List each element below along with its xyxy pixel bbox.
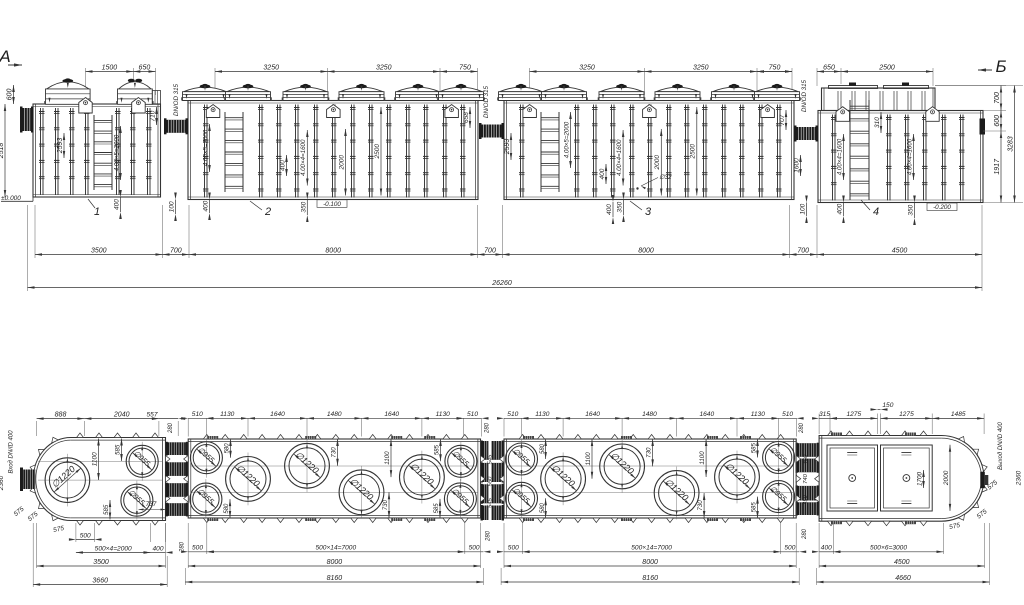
svg-text:1130: 1130 [535, 411, 550, 418]
svg-text:315: 315 [819, 411, 830, 418]
svg-text:1485: 1485 [951, 411, 966, 418]
svg-text:4.00×4=1600: 4.00×4=1600 [300, 139, 307, 176]
svg-text:510: 510 [192, 411, 203, 418]
svg-text:500×14=7000: 500×14=7000 [631, 545, 672, 552]
svg-text:1640: 1640 [270, 411, 285, 418]
svg-text:500: 500 [784, 545, 795, 552]
svg-text:Б: Б [995, 57, 1006, 76]
svg-text:280: 280 [168, 422, 174, 434]
svg-text:550: 550 [488, 476, 494, 486]
svg-text:4.00×5=2000: 4.00×5=2000 [202, 129, 209, 166]
svg-text:4500: 4500 [892, 247, 908, 254]
svg-text:1500: 1500 [102, 64, 118, 71]
svg-text:730: 730 [382, 499, 389, 510]
svg-text:400: 400 [203, 200, 210, 211]
svg-text:4.00×4=1600: 4.00×4=1600 [616, 139, 623, 176]
svg-text:3250: 3250 [693, 64, 709, 71]
svg-text:585: 585 [103, 504, 110, 515]
svg-text:1640: 1640 [699, 411, 714, 418]
svg-text:585: 585 [115, 444, 122, 455]
svg-text:500: 500 [469, 545, 480, 552]
svg-text:650: 650 [139, 64, 151, 71]
svg-text:DN/OD 315: DN/OD 315 [173, 83, 180, 116]
svg-text:150: 150 [882, 402, 893, 409]
svg-text:580: 580 [224, 503, 230, 514]
svg-text:1100: 1100 [585, 452, 592, 466]
svg-text:730: 730 [697, 500, 704, 511]
svg-text:580: 580 [540, 502, 546, 513]
svg-text:545: 545 [488, 454, 494, 464]
svg-text:400: 400 [606, 204, 613, 215]
svg-text:580: 580 [225, 443, 231, 454]
svg-text:100: 100 [800, 203, 807, 214]
svg-text:750: 750 [459, 64, 471, 71]
svg-text:510: 510 [507, 411, 518, 418]
svg-text:707: 707 [779, 114, 786, 125]
svg-text:600: 600 [994, 115, 1001, 127]
svg-text:2360: 2360 [0, 475, 5, 491]
svg-text:2000: 2000 [654, 155, 661, 171]
svg-text:400: 400 [114, 199, 121, 210]
svg-text:4.00×4=1600: 4.00×4=1600 [906, 138, 913, 175]
svg-text:1100: 1100 [384, 451, 391, 465]
svg-text:400: 400 [599, 168, 606, 179]
svg-text:280: 280 [485, 422, 491, 434]
svg-text:585: 585 [435, 444, 441, 455]
svg-text:DN/OD 315: DN/OD 315 [483, 85, 490, 118]
svg-text:-0.100: -0.100 [323, 201, 341, 208]
svg-text:3660: 3660 [92, 577, 108, 584]
svg-text:3: 3 [645, 206, 652, 218]
svg-text:8000: 8000 [638, 247, 654, 254]
svg-text:3250: 3250 [263, 64, 279, 71]
svg-text:350: 350 [617, 201, 624, 212]
svg-text:2593: 2593 [57, 138, 64, 155]
svg-text:2593: 2593 [504, 139, 511, 156]
svg-text:580: 580 [540, 443, 546, 454]
svg-text:500: 500 [192, 545, 203, 552]
svg-text:1640: 1640 [384, 411, 399, 418]
svg-text:8000: 8000 [325, 247, 341, 254]
svg-text:1480: 1480 [642, 411, 657, 418]
svg-text:500×6=3000: 500×6=3000 [870, 545, 907, 552]
svg-text:730: 730 [331, 447, 338, 458]
svg-text:2000: 2000 [338, 155, 345, 171]
svg-text:1: 1 [94, 206, 100, 218]
svg-text:4.00×4=1600: 4.00×4=1600 [836, 138, 843, 175]
svg-text:350: 350 [908, 204, 915, 215]
svg-text:2000: 2000 [943, 470, 950, 486]
svg-text:500×4=2000: 500×4=2000 [95, 545, 132, 552]
svg-text:100: 100 [169, 201, 176, 212]
svg-text:500: 500 [80, 532, 91, 539]
svg-text:585: 585 [752, 502, 758, 513]
svg-text:500×14=7000: 500×14=7000 [315, 545, 356, 552]
svg-text:888: 888 [55, 411, 67, 418]
svg-text:1130: 1130 [751, 411, 766, 418]
svg-text:737: 737 [146, 501, 157, 508]
svg-text:1480: 1480 [327, 411, 342, 418]
svg-text:585: 585 [752, 443, 758, 454]
svg-text:700: 700 [994, 92, 1001, 104]
svg-text:400: 400 [821, 545, 832, 552]
svg-text:730: 730 [646, 447, 653, 458]
svg-text:585: 585 [434, 503, 440, 514]
svg-text:4: 4 [873, 206, 879, 218]
svg-text:450: 450 [803, 454, 809, 464]
svg-text:1130: 1130 [436, 411, 451, 418]
svg-text:3500: 3500 [91, 247, 107, 254]
svg-text:310: 310 [874, 117, 881, 128]
svg-text:Вход DN/ID 400: Вход DN/ID 400 [9, 430, 15, 474]
svg-text:450: 450 [803, 494, 809, 504]
svg-text:650: 650 [823, 64, 835, 71]
svg-text:26260: 26260 [491, 280, 512, 287]
svg-text:658: 658 [463, 112, 470, 123]
svg-text:1275: 1275 [899, 411, 914, 418]
svg-text:2518: 2518 [0, 143, 5, 160]
svg-text:2: 2 [264, 206, 271, 218]
svg-text:2360: 2360 [1016, 470, 1023, 486]
svg-text:A: A [0, 47, 11, 66]
svg-text:8000: 8000 [642, 559, 658, 566]
svg-text:700: 700 [797, 247, 809, 254]
svg-text:350: 350 [300, 201, 307, 212]
svg-text:1100: 1100 [699, 451, 706, 465]
svg-text:3250: 3250 [376, 64, 392, 71]
svg-text:3250: 3250 [579, 64, 595, 71]
svg-text:1275: 1275 [846, 411, 861, 418]
svg-text:1700: 1700 [917, 472, 924, 487]
svg-text:700: 700 [484, 247, 496, 254]
svg-text:4.00×5=2000: 4.00×5=2000 [113, 134, 120, 171]
svg-text:400: 400 [280, 160, 287, 171]
svg-text:2500: 2500 [878, 64, 895, 71]
svg-text:Выход DN/ID 400: Выход DN/ID 400 [998, 422, 1004, 470]
svg-text:2500: 2500 [374, 144, 381, 160]
svg-text:-0.200: -0.200 [933, 204, 951, 211]
svg-text:DN/OD 315: DN/OD 315 [801, 79, 808, 112]
svg-text:750: 750 [769, 64, 781, 71]
svg-text:400: 400 [152, 545, 163, 552]
svg-text:545: 545 [488, 497, 494, 507]
svg-text:1130: 1130 [220, 411, 235, 418]
svg-text:8160: 8160 [642, 575, 658, 582]
svg-text:557: 557 [146, 411, 157, 418]
svg-text:3283: 3283 [1007, 136, 1014, 152]
svg-text:1640: 1640 [585, 411, 600, 418]
svg-text:280: 280 [486, 530, 492, 542]
svg-text:710: 710 [150, 110, 157, 121]
svg-text:3500: 3500 [93, 559, 109, 566]
svg-text:1100: 1100 [91, 452, 98, 466]
svg-text:±0.000: ±0.000 [1, 195, 21, 202]
svg-text:4.00×5=2000: 4.00×5=2000 [563, 121, 570, 158]
svg-text:8000: 8000 [327, 559, 343, 566]
svg-text:8160: 8160 [327, 575, 343, 582]
svg-text:2500: 2500 [690, 144, 697, 160]
svg-text:500: 500 [508, 545, 519, 552]
svg-text:2040: 2040 [113, 411, 130, 418]
svg-text:4660: 4660 [895, 575, 911, 582]
svg-text:510: 510 [782, 411, 793, 418]
svg-text:280: 280 [799, 422, 805, 434]
svg-text:4500: 4500 [894, 559, 910, 566]
svg-text:400: 400 [837, 203, 844, 214]
svg-text:740: 740 [803, 473, 809, 483]
svg-text:1600: 1600 [794, 158, 801, 173]
svg-text:∅32: ∅32 [659, 174, 672, 181]
svg-text:510: 510 [467, 411, 478, 418]
svg-text:700: 700 [170, 247, 182, 254]
svg-text:600: 600 [6, 89, 13, 101]
svg-text:280: 280 [802, 528, 808, 540]
svg-text:1917: 1917 [994, 158, 1001, 175]
